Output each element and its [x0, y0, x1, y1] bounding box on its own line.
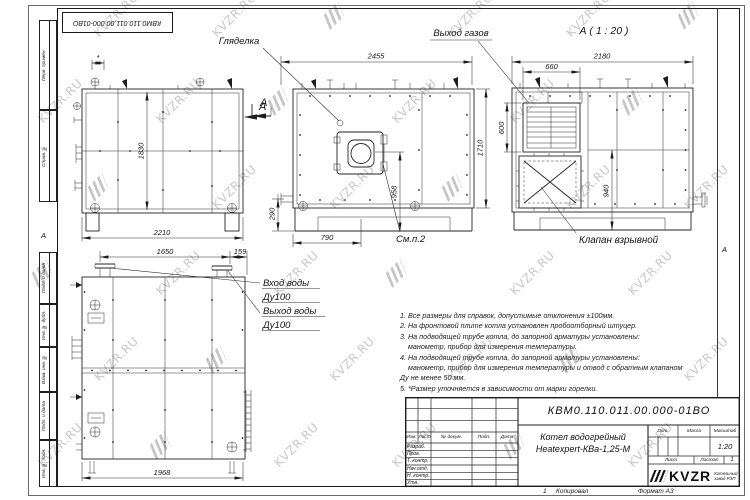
lit-label: Лит.: [648, 425, 678, 437]
dim-front-width: 2455: [367, 52, 386, 61]
sight-glass-label: Гляделка: [219, 36, 260, 47]
kvzr-logo-caption: Котельный завод РЭП: [714, 471, 737, 481]
col-doc: № докум.: [431, 432, 472, 443]
rear-right-nozzle: [693, 193, 707, 207]
see-note-label: См.п.2: [396, 234, 426, 245]
water-inlet-nozzle: [95, 264, 115, 277]
scale-label: Масштаб: [710, 425, 740, 437]
note-line: 4. На подводящей трубе котла, до запорно…: [400, 353, 682, 363]
row-nachotd: Нач.отд.: [405, 465, 431, 472]
gas-outlet-label: Выход газов: [433, 28, 488, 39]
drawing-sheet: KVZR.RUKVZR.RUKVZR.RUKVZR.RUKVZR.RUKVZR.…: [0, 0, 750, 500]
sight-glass-icon: [337, 120, 343, 126]
front-base: [295, 208, 472, 231]
row-tkontr: Т. контр.: [405, 458, 431, 465]
scale-value: 1:20: [710, 437, 740, 456]
sheets-label: Листов: [694, 456, 724, 464]
kvzr-logo-bars-icon: [650, 470, 669, 482]
plan-ladder: [243, 390, 251, 452]
front-bolt-dots: [299, 95, 468, 201]
dim-rear-width: 2180: [593, 52, 612, 61]
explosion-valve-label: Клапан взрывной: [579, 235, 659, 246]
dim-front-base: 290: [268, 207, 277, 221]
water-out-dn-label: Ду100: [262, 320, 291, 331]
format-label: Формат А3: [638, 488, 674, 495]
burner-door: [334, 132, 387, 174]
col-date: Дата: [496, 432, 518, 443]
note-line: Ду не менее 50 мм.: [400, 373, 682, 383]
sheet-label: Лист: [648, 456, 694, 464]
water-out-label: Выход воды: [263, 306, 316, 317]
gas-outlet-louver: [523, 103, 580, 152]
dim-side-width: 2210: [153, 228, 172, 237]
row-prov: Пров.: [405, 450, 431, 457]
row-utv: Утв.: [405, 480, 431, 487]
plan-bolt-dots: [84, 291, 244, 443]
product-name: Котел водогрейный Heatexpert-КВа-1,25-М: [518, 427, 648, 459]
note-line: 5. *Размер уточняется в зависимости от м…: [400, 384, 682, 394]
water-in-label: Вход воды: [263, 278, 309, 289]
product-name-line1: Котел водогрейный: [540, 431, 626, 443]
row-razrab: Разраб.: [405, 443, 431, 450]
col-sign: Подп.: [472, 432, 496, 443]
dim-plan-length: 1968: [154, 468, 172, 477]
title-block: Изм. Лист № докум. Подп. Дата Разраб. Пр…: [405, 397, 740, 487]
note-line: манометр, прибор для измерения температу…: [400, 363, 682, 373]
dim-burner-x: 790: [321, 233, 334, 242]
dim-star: *: [97, 53, 101, 62]
note-line: манометр, прибор для измерения температу…: [400, 342, 682, 352]
product-name-line2: Heatexpert-КВа-1,25-М: [536, 443, 630, 455]
dim-front-height: 1710: [476, 139, 485, 157]
dim-nozzle-edge: 159: [234, 247, 247, 256]
plan-left-fittings: [70, 282, 104, 450]
lifting-lug-icon: [91, 78, 204, 89]
copied-label: Копировал: [556, 488, 588, 495]
dim-louver-width: 660: [545, 62, 558, 71]
doc-number: КВМ0.110.011.00.000-01ВО: [518, 397, 740, 425]
mass-label: Масса: [678, 425, 710, 437]
col-list: Лист: [418, 432, 431, 443]
notes-block: 1. Все размеры для справок, допустимые о…: [400, 311, 682, 394]
dim-louver-height: 600: [497, 121, 506, 134]
col-izm: Изм.: [405, 432, 418, 443]
section-arrow-a-front: А: [254, 97, 271, 116]
front-view: 2455 1710 958 290 790 См.п.2 Гляделка А: [219, 36, 490, 247]
fold-number: 1: [543, 488, 547, 495]
side-view: * 1830 2210 А: [74, 53, 267, 241]
rear-base: [514, 212, 691, 230]
note-line: 2. На фронтовой плите котла установлен п…: [400, 321, 682, 331]
dim-nozzle-span: 1650: [157, 247, 175, 256]
note-line: 1. Все размеры для справок, допустимые о…: [400, 311, 682, 321]
kvzr-logo-text: KVZR: [669, 468, 711, 484]
kvzr-logo: KVZR Котельный завод РЭП: [648, 464, 740, 487]
water-outlet-nozzle: [212, 266, 232, 277]
dim-rear-lower: 940: [602, 184, 611, 197]
rear-top-fittings: [520, 76, 685, 88]
row-nkontr: Н. контр.: [405, 472, 431, 479]
plan-view: Вход воды Ду100 Выход воды Ду100 1650 15…: [70, 247, 325, 481]
dim-side-height: 1830: [137, 142, 146, 160]
front-top-fittings: [302, 77, 458, 89]
section-a-label: А: [259, 97, 267, 109]
view-a-label: А ( 1 : 20 ): [578, 25, 628, 37]
sheets-value: 1: [724, 456, 740, 464]
explosion-valve-panel: [516, 153, 584, 211]
note-line: 3. На подводящей трубе котла, до запорно…: [400, 332, 682, 342]
water-in-dn-label: Ду100: [262, 292, 291, 303]
